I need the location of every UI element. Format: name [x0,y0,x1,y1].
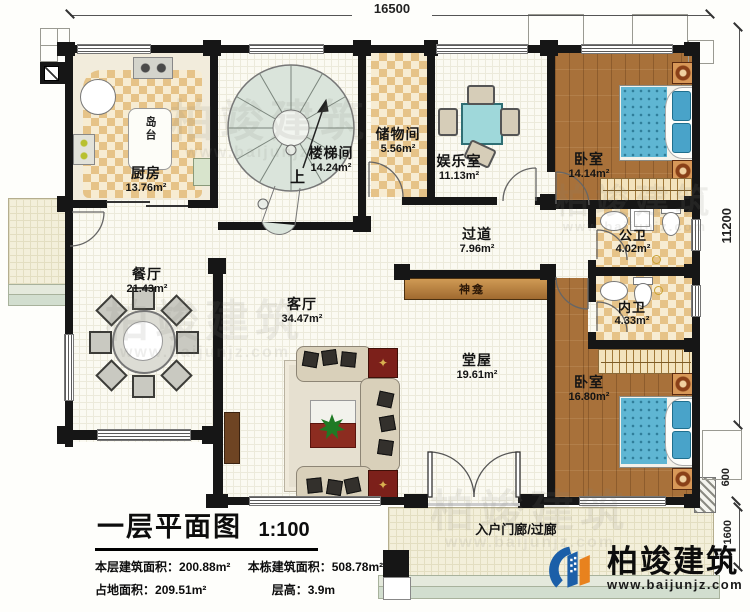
room-label-porch: 入户门廊/过廊 [436,519,596,538]
room-label-storage: 储物间5.56m² [350,126,446,155]
plan-scale: 1:100 [258,519,309,541]
stat-floor-height: 层高：3.9m [272,583,335,597]
room-label-living: 客厅34.47m² [252,296,352,325]
sliding-door [106,202,188,206]
room-label-kitchen: 厨房13.76m² [96,165,196,194]
floor-plan-canvas: ✦ ✦ [0,0,750,612]
stat-footprint-area: 占地面积：209.51m² [95,583,206,597]
dimension-line-right [739,28,740,428]
room-label-dining: 餐厅21.43m² [97,266,197,295]
dimension-right-height: 11200 [719,208,734,243]
company-logo-icon [545,540,601,598]
dimension-right-offset: 600 [720,468,732,486]
room-label-island: 岛台 [142,116,158,142]
plant-icon [319,414,345,439]
room-label-main-hall: 堂屋19.61m² [427,352,527,381]
stat-floor-area: 本层建筑面积：200.88m² [95,560,230,574]
room-label-entertainment: 娱乐室11.13m² [409,153,509,182]
company-name: 柏竣建筑 [607,546,743,577]
plan-title: 一层平面图 [97,512,242,542]
stat-building-area: 本栋建筑面积：508.78m² [248,560,383,574]
stair-up-label: 上 [290,166,305,187]
room-label-public-bath: 公卫4.02m² [583,228,683,256]
company-logo: 柏竣建筑 www.baijunjz.com [545,540,743,598]
room-label-ensuite-bath: 内卫4.33m² [582,300,682,328]
room-label-bedroom2: 卧室16.80m² [539,374,639,403]
room-label-hallway: 过道7.96m² [427,226,527,255]
title-block: 一层平面图 1:100 本层建筑面积：200.88m² 本栋建筑面积：508.7… [95,505,395,598]
dimension-top-width: 16500 [352,1,432,16]
room-label-bedroom1: 卧室14.14m² [539,151,639,180]
company-website: www.baijunjz.com [607,577,743,592]
entry-double-door [428,452,520,497]
room-label-shrine: 神龛 [422,281,522,297]
